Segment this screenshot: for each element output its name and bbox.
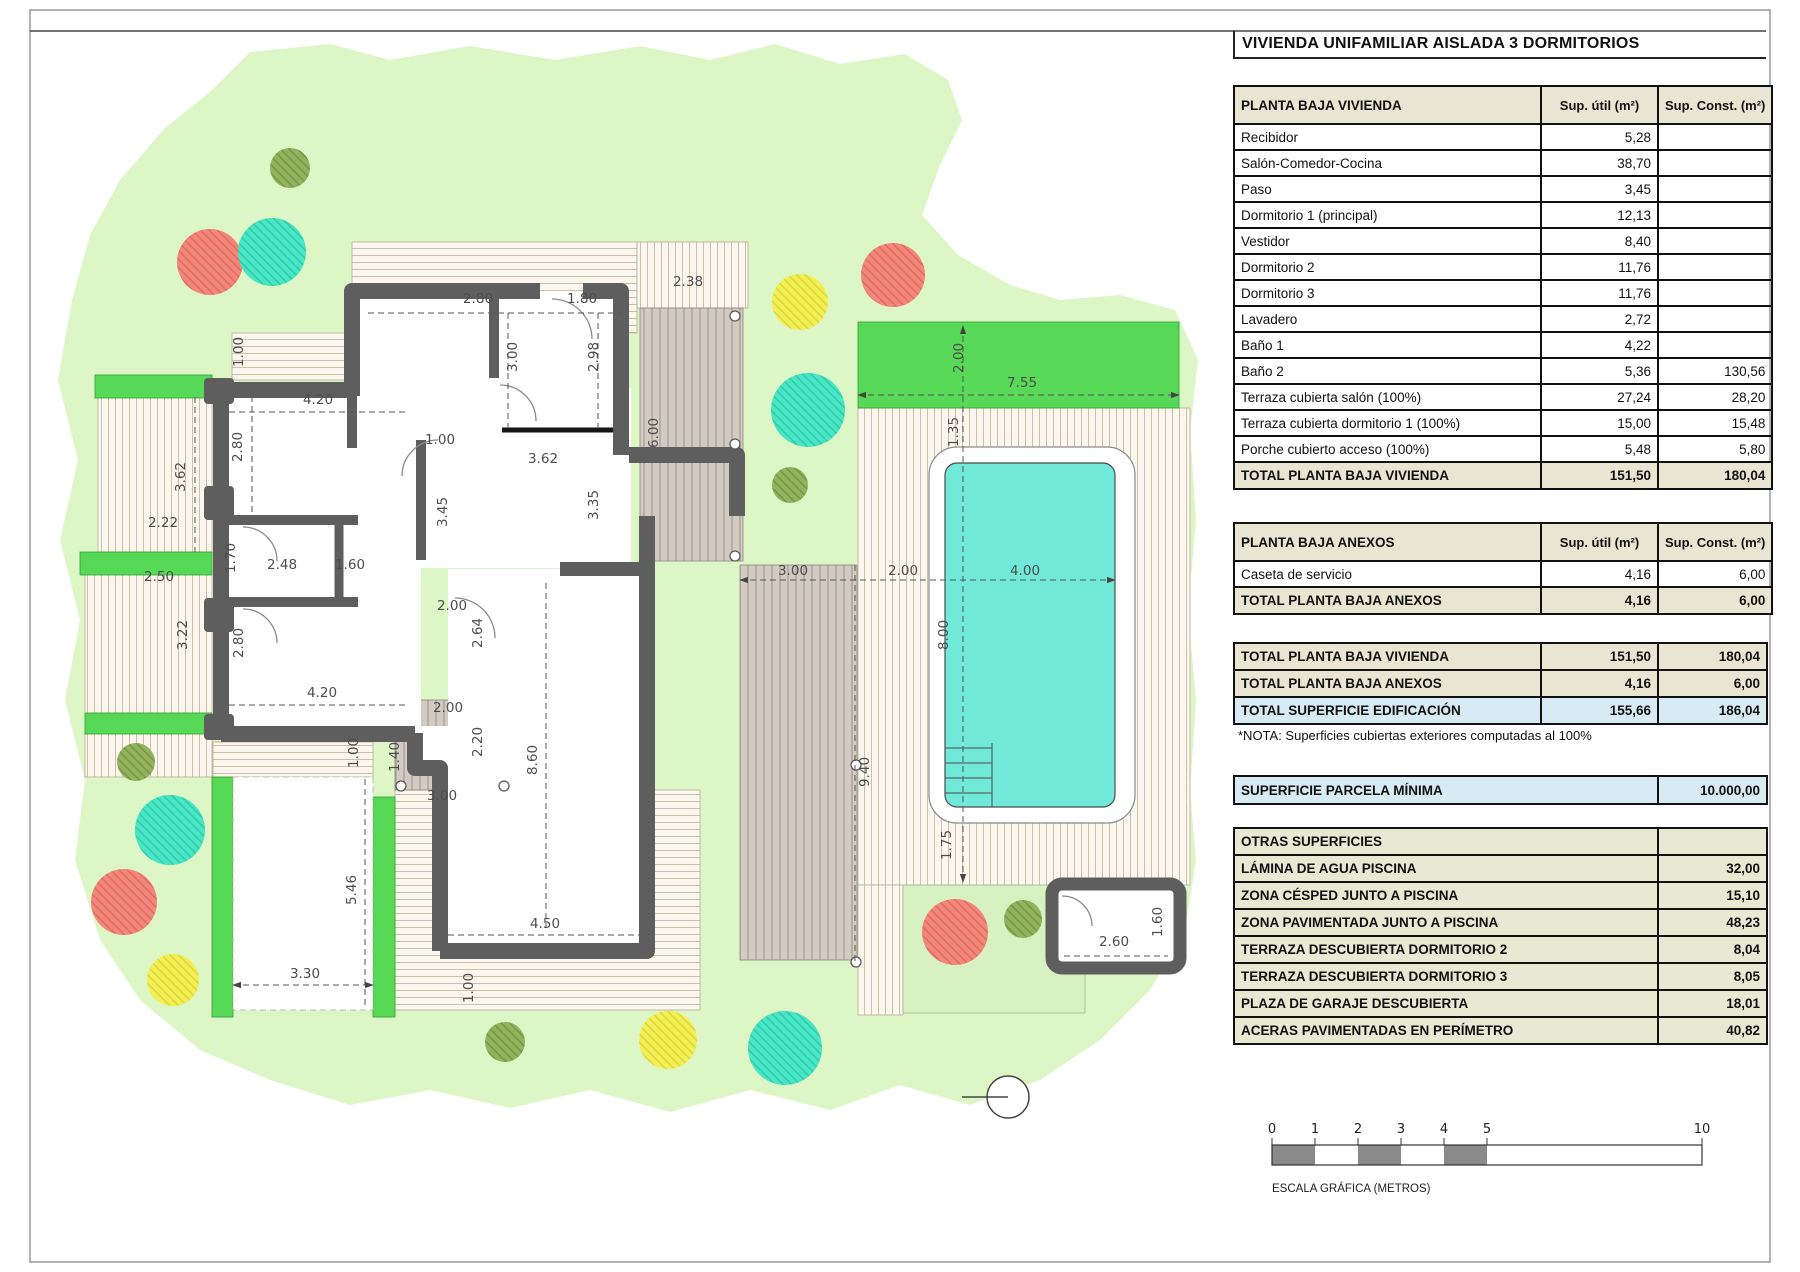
table-cell: TERRAZA DESCUBIERTA DORMITORIO 2 <box>1234 936 1658 963</box>
dimension-label: 2.80 <box>463 291 493 307</box>
tree-icon <box>238 218 306 286</box>
dimension-label: 2.00 <box>433 700 463 716</box>
table-cell: 11,76 <box>1541 280 1658 306</box>
table-row: Caseta de servicio4,166,00 <box>1234 561 1772 587</box>
table-row: TOTAL PLANTA BAJA VIVIENDA151,50180,04 <box>1234 643 1767 670</box>
table-cell <box>1658 150 1772 176</box>
dimension-label: 4.00 <box>1010 563 1040 579</box>
dimension-label: 1.60 <box>335 557 365 573</box>
table-cell <box>1658 306 1772 332</box>
table-row: ACERAS PAVIMENTADAS EN PERÍMETRO40,82 <box>1234 1017 1767 1044</box>
table-row: TOTAL PLANTA BAJA VIVIENDA151,50180,04 <box>1234 462 1772 489</box>
table-cell: 6,00 <box>1658 587 1772 614</box>
table-row: Salón-Comedor-Cocina38,70 <box>1234 150 1772 176</box>
table-cell: 18,01 <box>1658 990 1767 1017</box>
table-cell: Dormitorio 2 <box>1234 254 1541 280</box>
table-row: LÁMINA DE AGUA PISCINA32,00 <box>1234 855 1767 882</box>
tree-icon <box>485 1022 525 1062</box>
table-row: Dormitorio 311,76 <box>1234 280 1772 306</box>
tree-icon <box>771 373 845 447</box>
dimension-label: 3.45 <box>435 497 451 527</box>
table-row: Terraza cubierta dormitorio 1 (100%)15,0… <box>1234 410 1772 436</box>
dimension-label: 1.75 <box>939 830 955 860</box>
table-cell: 11,76 <box>1541 254 1658 280</box>
tree-icon <box>1004 900 1042 938</box>
table-cell: 28,20 <box>1658 384 1772 410</box>
table-cell: 180,04 <box>1658 643 1767 670</box>
table-cell: 4,16 <box>1541 670 1658 697</box>
table-cell: Terraza cubierta salón (100%) <box>1234 384 1541 410</box>
table-cell <box>1658 280 1772 306</box>
footnote: *NOTA: Superficies cubiertas exteriores … <box>1238 728 1592 743</box>
table-cell: PLAZA DE GARAJE DESCUBIERTA <box>1234 990 1658 1017</box>
table-cell: 155,66 <box>1541 697 1658 724</box>
table-cell: Caseta de servicio <box>1234 561 1541 587</box>
table-cell: Recibidor <box>1234 124 1541 150</box>
dimension-label: 2.00 <box>951 343 967 373</box>
table-cell: 8,05 <box>1658 963 1767 990</box>
table-cell: 5,28 <box>1541 124 1658 150</box>
scale-caption: ESCALA GRÁFICA (METROS) <box>1272 1183 1430 1195</box>
table-cell: ZONA CÉSPED JUNTO A PISCINA <box>1234 882 1658 909</box>
table-cell: 4,16 <box>1541 587 1658 614</box>
table-cell: TERRAZA DESCUBIERTA DORMITORIO 3 <box>1234 963 1658 990</box>
table-cell: 4,16 <box>1541 561 1658 587</box>
dimension-label: 8.00 <box>936 620 952 650</box>
table-cell: 5,80 <box>1658 436 1772 462</box>
table-cell: 15,10 <box>1658 882 1767 909</box>
table-row: Baño 14,22 <box>1234 332 1772 358</box>
tree-icon <box>135 795 205 865</box>
tree-icon <box>922 899 988 965</box>
table-cell: Vestidor <box>1234 228 1541 254</box>
table-row: TOTAL SUPERFICIE EDIFICACIÓN155,66186,04 <box>1234 697 1767 724</box>
dimension-label: 4.20 <box>303 392 333 408</box>
table-row: PLAZA DE GARAJE DESCUBIERTA18,01 <box>1234 990 1767 1017</box>
dimension-label: 3.30 <box>290 966 320 982</box>
table-cell: 10.000,00 <box>1658 776 1767 804</box>
dimension-label: 7.55 <box>1007 375 1037 391</box>
dimension-label: 4.20 <box>307 685 337 701</box>
tree-icon <box>270 148 310 188</box>
table-cell <box>1658 828 1767 855</box>
table-row: PLANTA BAJA VIVIENDASup. útil (m²)Sup. C… <box>1234 86 1772 124</box>
tree-icon <box>91 869 157 935</box>
dimension-label: 2.00 <box>888 563 918 579</box>
scale-tick-label: 1 <box>1311 1122 1319 1137</box>
table-cell: 130,56 <box>1658 358 1772 384</box>
table-cell: 186,04 <box>1658 697 1767 724</box>
dimension-label: 3.00 <box>427 788 457 804</box>
dimension-label: 2.20 <box>470 727 486 757</box>
table-cell <box>1658 176 1772 202</box>
table-cell: TOTAL PLANTA BAJA VIVIENDA <box>1234 643 1541 670</box>
table-cell: TOTAL PLANTA BAJA ANEXOS <box>1234 587 1541 614</box>
dimension-label: 3.62 <box>528 451 558 467</box>
table-cell: 32,00 <box>1658 855 1767 882</box>
page-title: VIVIENDA UNIFAMILIAR AISLADA 3 DORMITORI… <box>1233 31 1766 59</box>
table-row: Dormitorio 1 (principal)12,13 <box>1234 202 1772 228</box>
table-cell: Paso <box>1234 176 1541 202</box>
dimension-label: 2.00 <box>437 598 467 614</box>
table-cell: 3,45 <box>1541 176 1658 202</box>
table-row: ZONA PAVIMENTADA JUNTO A PISCINA48,23 <box>1234 909 1767 936</box>
table-cell: 40,82 <box>1658 1017 1767 1044</box>
dimension-label: 1.80 <box>567 291 597 307</box>
table-cell: Sup. Const. (m²) <box>1658 86 1772 124</box>
table-cell: 38,70 <box>1541 150 1658 176</box>
dimension-label: 3.00 <box>778 563 808 579</box>
table-cell <box>1658 124 1772 150</box>
table-row: Dormitorio 211,76 <box>1234 254 1772 280</box>
dimension-label: 2.22 <box>148 515 178 531</box>
dimension-label: 6.00 <box>646 418 662 448</box>
table-cell: Baño 1 <box>1234 332 1541 358</box>
tree-icon <box>147 954 199 1006</box>
table-otras-superficies: OTRAS SUPERFICIESLÁMINA DE AGUA PISCINA3… <box>1233 827 1768 1045</box>
table-cell: TOTAL SUPERFICIE EDIFICACIÓN <box>1234 697 1541 724</box>
tree-icon <box>748 1011 822 1085</box>
dimension-label: 3.35 <box>586 490 602 520</box>
table-cell <box>1658 228 1772 254</box>
table-cell: 15,48 <box>1658 410 1772 436</box>
table-cell: 8,40 <box>1541 228 1658 254</box>
dimension-label: 2.80 <box>230 432 246 462</box>
table-row: TERRAZA DESCUBIERTA DORMITORIO 38,05 <box>1234 963 1767 990</box>
table-cell: Sup. útil (m²) <box>1541 86 1658 124</box>
table-cell: 4,22 <box>1541 332 1658 358</box>
table-cell: Terraza cubierta dormitorio 1 (100%) <box>1234 410 1541 436</box>
table-row: SUPERFICIE PARCELA MÍNIMA10.000,00 <box>1234 776 1767 804</box>
table-cell: PLANTA BAJA ANEXOS <box>1234 523 1541 561</box>
table-cell: 6,00 <box>1658 670 1767 697</box>
dimension-label: 1.00 <box>425 432 455 448</box>
table-row: TOTAL PLANTA BAJA ANEXOS4,166,00 <box>1234 670 1767 697</box>
tree-icon <box>117 743 155 781</box>
table-row: Lavadero2,72 <box>1234 306 1772 332</box>
table-cell: Dormitorio 1 (principal) <box>1234 202 1541 228</box>
scale-tick-label: 10 <box>1694 1122 1711 1137</box>
dimension-label: 1.70 <box>223 543 239 573</box>
dimension-label: 3.00 <box>505 342 521 372</box>
table-cell: Salón-Comedor-Cocina <box>1234 150 1541 176</box>
dimension-label: 1.35 <box>946 417 962 447</box>
dimension-label: 4.50 <box>530 916 560 932</box>
dimension-label: 9.40 <box>857 757 873 787</box>
tree-icon <box>177 229 243 295</box>
tree-icon <box>639 1011 697 1069</box>
dimension-label: 2.50 <box>144 569 174 585</box>
table-row: TOTAL PLANTA BAJA ANEXOS4,166,00 <box>1234 587 1772 614</box>
table-cell: ACERAS PAVIMENTADAS EN PERÍMETRO <box>1234 1017 1658 1044</box>
table-cell: Sup. útil (m²) <box>1541 523 1658 561</box>
table-row: Paso3,45 <box>1234 176 1772 202</box>
dimension-label: 2.60 <box>1099 934 1129 950</box>
table-planta-baja-anexos: PLANTA BAJA ANEXOSSup. útil (m²)Sup. Con… <box>1233 522 1773 615</box>
scale-tick-label: 0 <box>1268 1122 1276 1137</box>
table-cell: 12,13 <box>1541 202 1658 228</box>
table-cell <box>1658 202 1772 228</box>
table-cell: 180,04 <box>1658 462 1772 489</box>
table-cell: 2,72 <box>1541 306 1658 332</box>
table-cell: Lavadero <box>1234 306 1541 332</box>
tree-icon <box>772 467 808 503</box>
table-cell: Dormitorio 3 <box>1234 280 1541 306</box>
table-cell <box>1658 254 1772 280</box>
table-cell: 48,23 <box>1658 909 1767 936</box>
table-row: Baño 25,36130,56 <box>1234 358 1772 384</box>
table-cell: SUPERFICIE PARCELA MÍNIMA <box>1234 776 1658 804</box>
table-cell: OTRAS SUPERFICIES <box>1234 828 1658 855</box>
tree-icon <box>861 243 925 307</box>
table-cell: 151,50 <box>1541 462 1658 489</box>
table-cell: Baño 2 <box>1234 358 1541 384</box>
dimension-label: 3.62 <box>173 462 189 492</box>
table-cell: 5,36 <box>1541 358 1658 384</box>
table-row: Porche cubierto acceso (100%)5,485,80 <box>1234 436 1772 462</box>
table-cell: 27,24 <box>1541 384 1658 410</box>
table-cell: 151,50 <box>1541 643 1658 670</box>
dimension-label: 1.00 <box>461 973 477 1003</box>
table-row: PLANTA BAJA ANEXOSSup. útil (m²)Sup. Con… <box>1234 523 1772 561</box>
table-cell: Sup. Const. (m²) <box>1658 523 1772 561</box>
dimension-label: 2.80 <box>231 628 247 658</box>
table-cell: 6,00 <box>1658 561 1772 587</box>
tree-icon <box>772 274 828 330</box>
table-cell: ZONA PAVIMENTADA JUNTO A PISCINA <box>1234 909 1658 936</box>
table-cell: LÁMINA DE AGUA PISCINA <box>1234 855 1658 882</box>
dimension-label: 3.22 <box>175 620 191 650</box>
scale-tick-label: 3 <box>1397 1122 1405 1137</box>
scale-tick-label: 5 <box>1483 1122 1491 1137</box>
table-cell: Porche cubierto acceso (100%) <box>1234 436 1541 462</box>
table-row: ZONA CÉSPED JUNTO A PISCINA15,10 <box>1234 882 1767 909</box>
dimension-label: 2.48 <box>267 557 297 573</box>
scale-tick-label: 2 <box>1354 1122 1362 1137</box>
table-row: TERRAZA DESCUBIERTA DORMITORIO 28,04 <box>1234 936 1767 963</box>
dimension-label: 5.46 <box>344 875 360 905</box>
table-resumen-totales: TOTAL PLANTA BAJA VIVIENDA151,50180,04TO… <box>1233 642 1768 725</box>
table-cell: 5,48 <box>1541 436 1658 462</box>
dimension-label: 2.38 <box>673 274 703 290</box>
table-row: Vestidor8,40 <box>1234 228 1772 254</box>
table-parcela-minima: SUPERFICIE PARCELA MÍNIMA10.000,00 <box>1233 775 1768 805</box>
dimension-label: 8.60 <box>525 745 541 775</box>
table-planta-baja-vivienda: PLANTA BAJA VIVIENDASup. útil (m²)Sup. C… <box>1233 85 1773 490</box>
table-row: OTRAS SUPERFICIES <box>1234 828 1767 855</box>
table-cell: TOTAL PLANTA BAJA VIVIENDA <box>1234 462 1541 489</box>
plan-sheet: 1.002.801.802.383.002.986.004.202.803.62… <box>0 0 1800 1272</box>
dimension-label: 1.00 <box>346 738 362 768</box>
table-row: Recibidor5,28 <box>1234 124 1772 150</box>
dimension-label: 2.98 <box>586 342 602 372</box>
table-cell: TOTAL PLANTA BAJA ANEXOS <box>1234 670 1541 697</box>
dimension-label: 1.00 <box>231 337 247 367</box>
table-cell <box>1658 332 1772 358</box>
dimension-label: 2.64 <box>470 618 486 648</box>
dimension-label: 1.60 <box>1150 907 1166 937</box>
scale-tick-label: 4 <box>1440 1122 1448 1137</box>
table-cell: 15,00 <box>1541 410 1658 436</box>
table-cell: PLANTA BAJA VIVIENDA <box>1234 86 1541 124</box>
table-cell: 8,04 <box>1658 936 1767 963</box>
pool <box>929 447 1135 823</box>
table-row: Terraza cubierta salón (100%)27,2428,20 <box>1234 384 1772 410</box>
dimension-label: 1.40 <box>387 742 403 772</box>
scale-bar: 01234510 <box>1268 1122 1710 1165</box>
